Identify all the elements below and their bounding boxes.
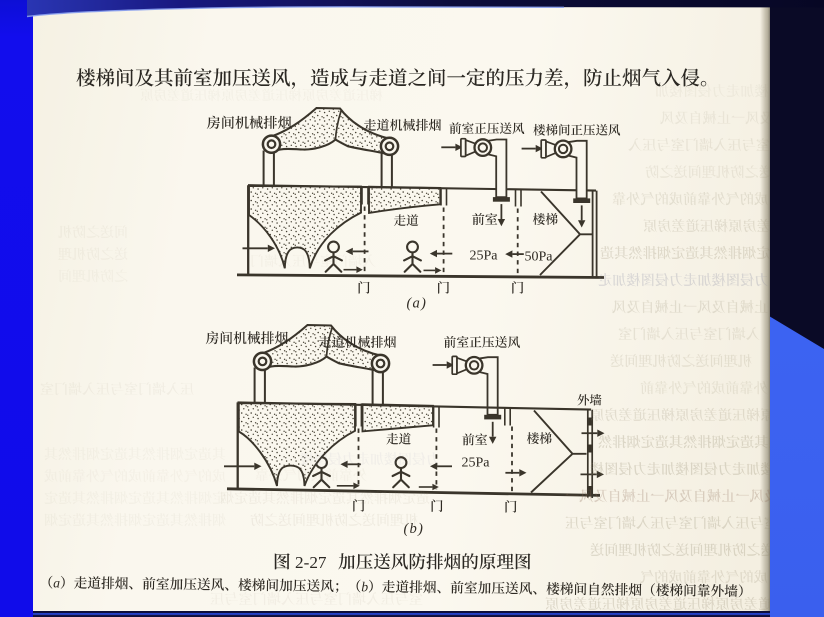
svg-text:25Pa: 25Pa (462, 455, 491, 470)
svg-text:b: b (361, 579, 368, 594)
svg-text:25Pa: 25Pa (470, 248, 499, 263)
svg-text:(a): (a) (407, 296, 428, 312)
svg-text:2-27: 2-27 (295, 553, 327, 572)
svg-text:a: a (53, 575, 60, 590)
svg-text:50Pa: 50Pa (525, 250, 554, 265)
